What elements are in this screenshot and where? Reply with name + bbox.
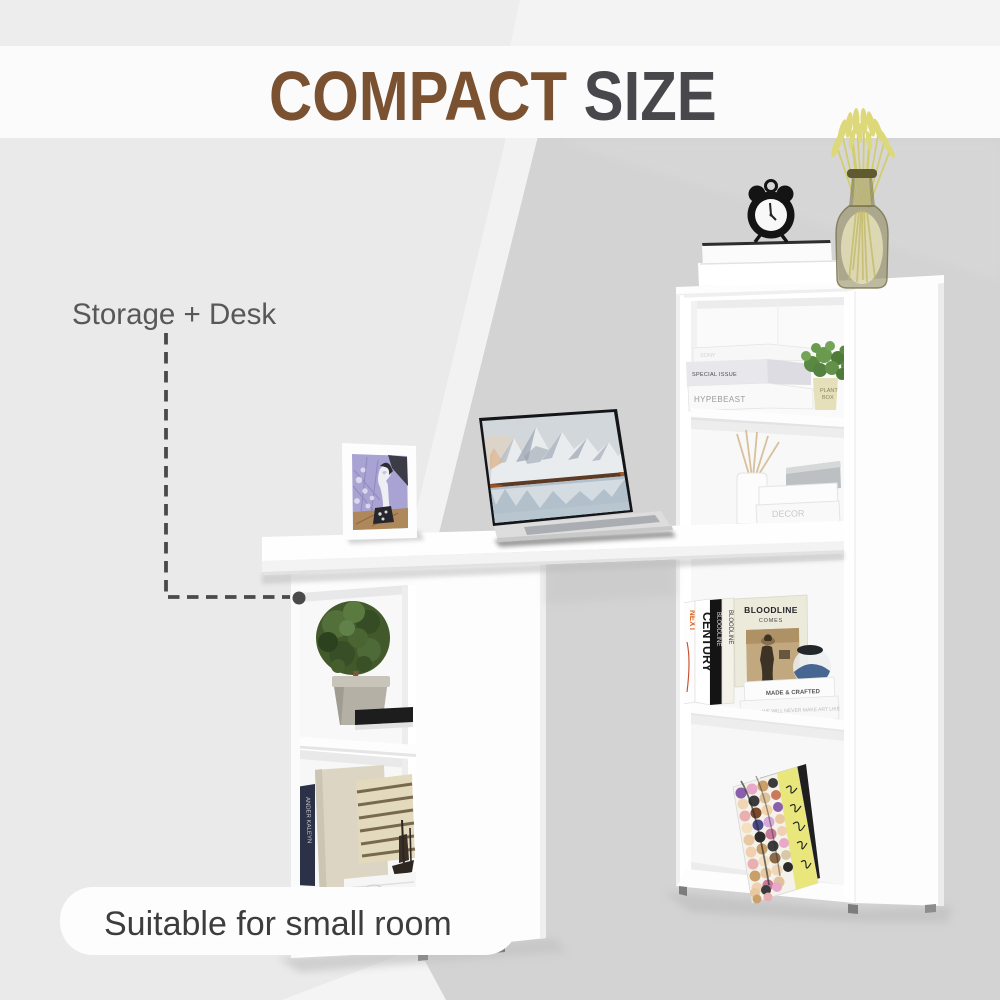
svg-text:COMES: COMES bbox=[759, 618, 783, 624]
svg-text:BLOODLINE: BLOODLINE bbox=[715, 612, 721, 646]
svg-text:SPECIAL ISSUE: SPECIAL ISSUE bbox=[692, 372, 737, 378]
svg-text:BLOODLINE: BLOODLINE bbox=[727, 610, 733, 644]
svg-text:BOX: BOX bbox=[822, 395, 834, 401]
svg-text:SONY: SONY bbox=[700, 353, 716, 359]
svg-text:Storage + Desk: Storage + Desk bbox=[72, 298, 276, 331]
svg-text:COMPACT SIZE: COMPACT SIZE bbox=[269, 57, 717, 135]
svg-text:Suitable for small room: Suitable for small room bbox=[104, 905, 452, 943]
svg-text:HYPEBEAST: HYPEBEAST bbox=[694, 395, 746, 404]
svg-text:BLOODLINE: BLOODLINE bbox=[744, 605, 798, 615]
svg-text:DECOR: DECOR bbox=[772, 508, 805, 519]
svg-text:PLANT: PLANT bbox=[820, 388, 838, 394]
